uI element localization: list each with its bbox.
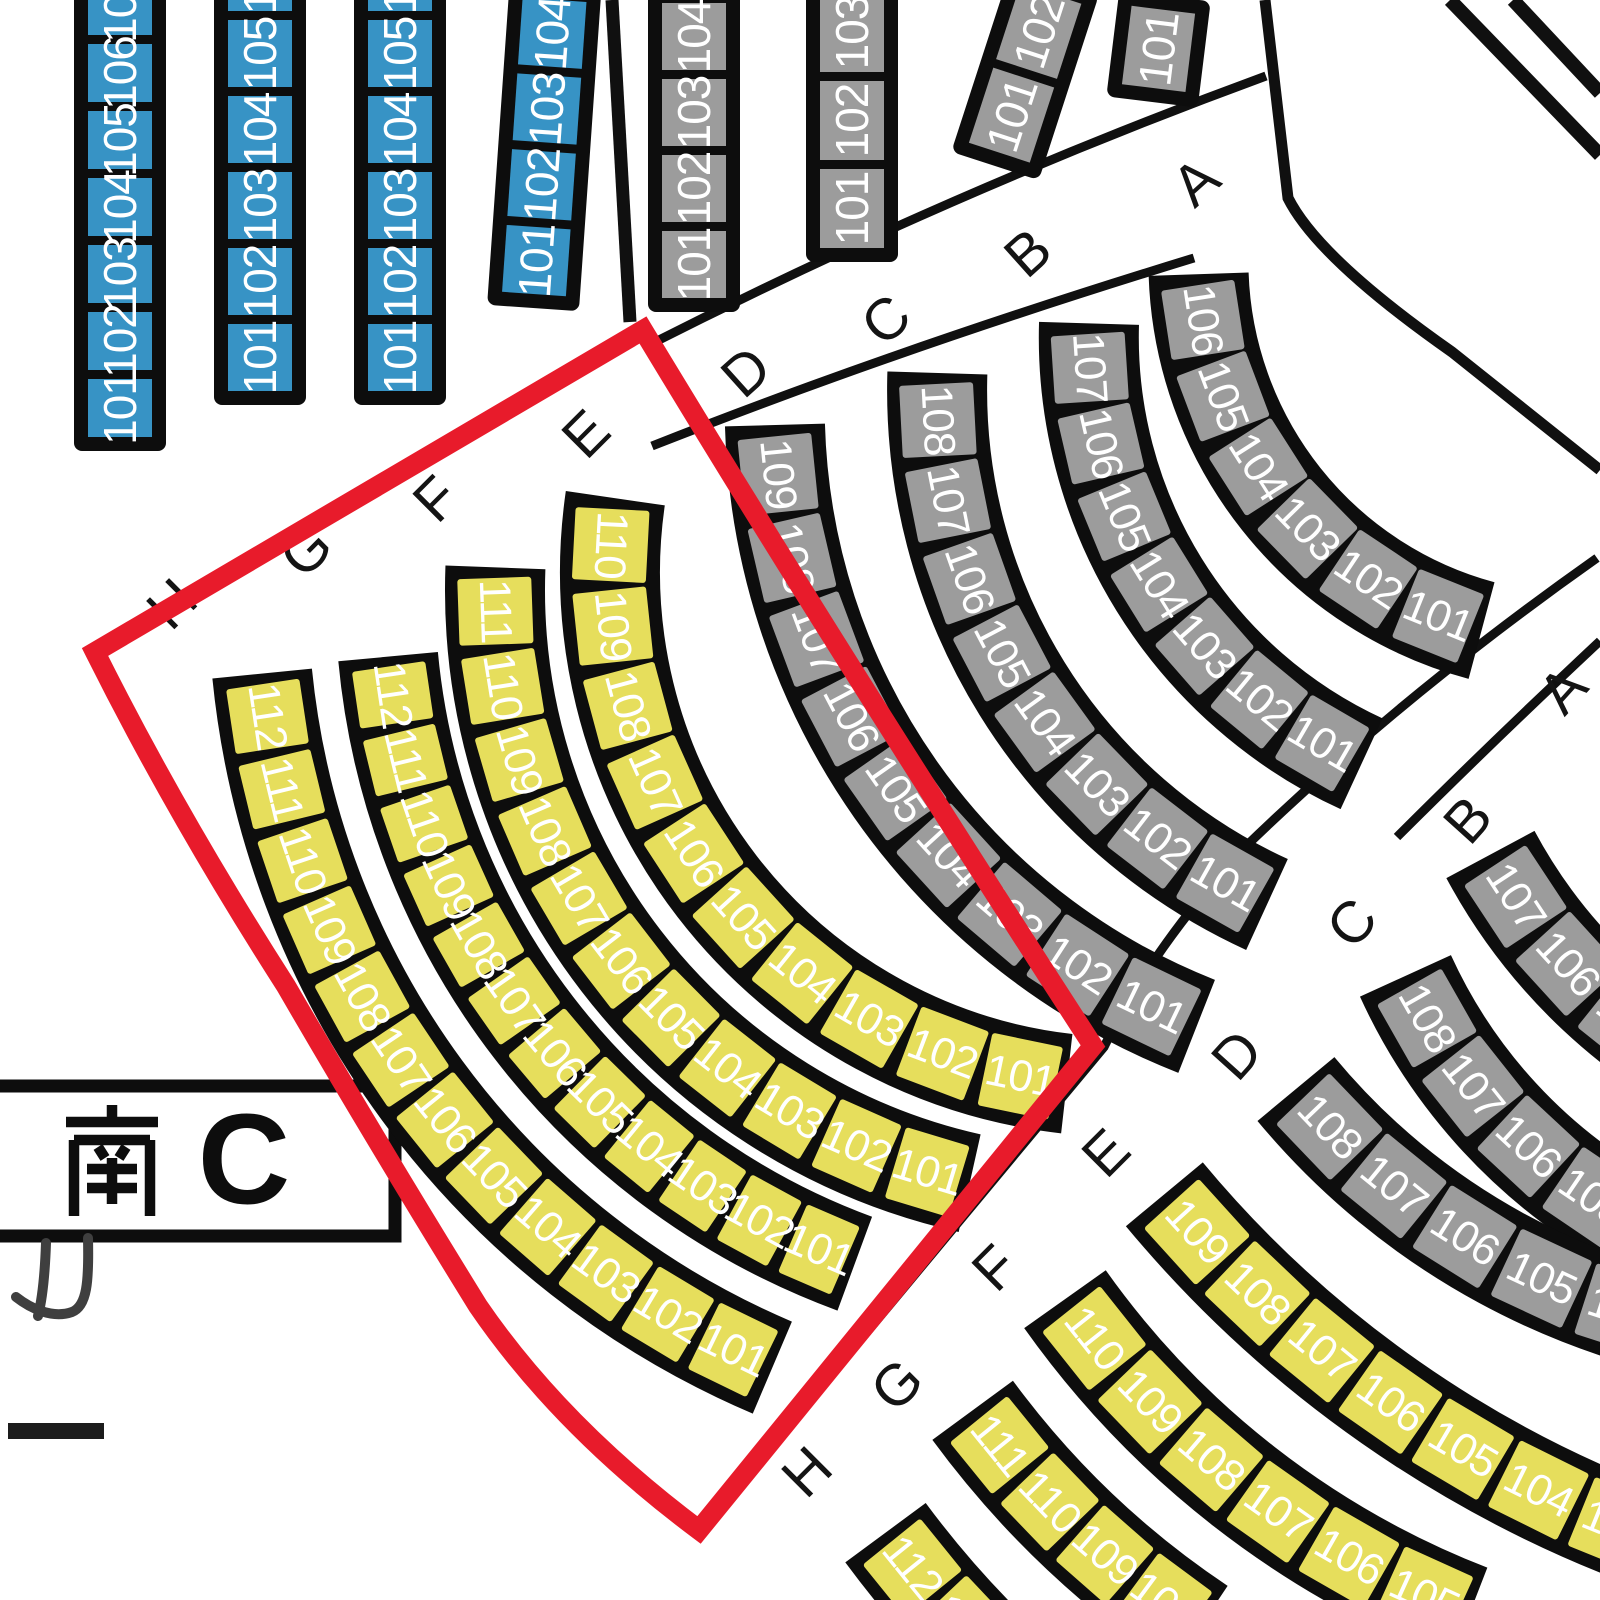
svg-text:106: 106 [94,36,146,110]
seat-column-upper-left-blue-B2: 101102103104105106 [214,0,306,405]
svg-text:104: 104 [94,170,146,244]
svg-text:107: 107 [94,0,146,43]
venue-seat-map: C HGFEDCBAABCDEFGH 101102103104105106107… [0,0,1600,1600]
svg-text:103: 103 [374,169,426,243]
seat-upper-left-blue-B1-103[interactable]: 103 [88,237,152,311]
svg-text:105: 105 [234,17,286,91]
svg-text:104: 104 [374,92,426,166]
seat-upper-left-blue-B1-101[interactable]: 101 [88,371,152,445]
seat-column-upper-left-blue-B1: 101102103104105106107 [74,0,166,451]
svg-text:105: 105 [94,103,146,177]
seat-minami-c-F-110[interactable]: 110 [461,647,545,725]
seat-minami-c-E-110[interactable]: 110 [572,507,650,583]
svg-text:107: 107 [1063,331,1116,404]
svg-text:102: 102 [374,245,426,319]
seat-upper-left-blue-B4-102[interactable]: 102 [507,146,576,224]
seat-upper-left-blue-B3-101[interactable]: 101 [368,321,432,395]
seat-upper-left-blue-B2-102[interactable]: 102 [228,245,292,319]
svg-text:112: 112 [364,658,422,732]
seat-upper-left-blue-B2-105[interactable]: 105 [228,17,292,91]
seat-column-upper-gray-G1: 101102103104 [648,0,740,312]
seat-upper-left-blue-B1-102[interactable]: 102 [88,304,152,378]
svg-text:102: 102 [668,152,720,226]
seat-gray-upper-right-B-107[interactable]: 107 [1051,330,1129,405]
svg-text:104: 104 [234,92,286,166]
svg-text:106: 106 [374,0,426,14]
seat-upper-left-blue-B1-107[interactable]: 107 [88,0,152,43]
svg-text:111: 111 [470,578,521,644]
svg-text:103: 103 [234,169,286,243]
svg-text:101: 101 [668,228,720,302]
seat-upper-left-blue-B1-105[interactable]: 105 [88,103,152,177]
seat-gray-upper-right-C-108[interactable]: 108 [899,382,977,458]
svg-text:104: 104 [668,0,720,73]
seat-upper-gray-G1-104[interactable]: 104 [662,0,726,73]
seat-upper-gray-G2-101[interactable]: 101 [820,169,884,248]
svg-text:112: 112 [238,679,296,753]
svg-text:104: 104 [524,0,581,72]
seat-column-upper-left-blue-B3: 101102103104105106 [354,0,446,405]
section-label-letter: C [198,1089,290,1232]
svg-text:105: 105 [374,17,426,91]
svg-text:110: 110 [584,510,636,580]
seat-column-upper-gray-G4: 101 [1106,0,1210,108]
seat-upper-gray-G1-101[interactable]: 101 [662,228,726,302]
seat-upper-left-blue-B3-102[interactable]: 102 [368,245,432,319]
seat-upper-left-blue-B3-105[interactable]: 105 [368,17,432,91]
svg-text:102: 102 [826,84,878,158]
svg-text:101: 101 [374,321,426,395]
svg-text:103: 103 [518,70,575,147]
seat-upper-left-blue-B1-106[interactable]: 106 [88,36,152,110]
seat-upper-left-blue-B4-104[interactable]: 104 [518,0,587,72]
seat-minami-c-H-112[interactable]: 112 [226,678,309,755]
seat-upper-left-blue-B2-106[interactable]: 106 [228,0,292,14]
svg-text:101: 101 [826,172,878,246]
svg-text:101: 101 [508,222,565,299]
svg-text:102: 102 [234,245,286,319]
seat-upper-gray-G2-103[interactable]: 103 [820,0,884,72]
seat-upper-left-blue-B1-104[interactable]: 104 [88,170,152,244]
seat-upper-left-blue-B3-106[interactable]: 106 [368,0,432,14]
seat-gray-upper-right-C-107[interactable]: 107 [905,458,992,543]
seat-upper-gray-G1-103[interactable]: 103 [662,76,726,150]
seat-upper-left-blue-B4-103[interactable]: 103 [512,70,581,148]
seat-upper-left-blue-B3-104[interactable]: 104 [368,92,432,166]
seat-upper-gray-G1-102[interactable]: 102 [662,152,726,226]
seat-upper-left-blue-B2-101[interactable]: 101 [228,321,292,395]
svg-text:106: 106 [234,0,286,14]
svg-text:102: 102 [94,304,146,378]
svg-text:101: 101 [94,371,146,445]
svg-text:101: 101 [1128,9,1189,89]
svg-text:101: 101 [234,321,286,395]
section-label-box: C [0,1086,395,1236]
svg-text:109: 109 [585,589,641,664]
svg-text:103: 103 [94,237,146,311]
seat-upper-left-blue-B3-103[interactable]: 103 [368,169,432,243]
seat-map-page: C HGFEDCBAABCDEFGH 101102103104105106107… [0,0,1600,1600]
svg-text:102: 102 [513,146,570,223]
seat-upper-left-blue-B2-103[interactable]: 103 [228,169,292,243]
svg-text:103: 103 [668,76,720,150]
svg-text:108: 108 [912,384,965,457]
seat-column-upper-gray-G2: 101102103 [806,0,898,262]
seat-upper-left-blue-B4-101[interactable]: 101 [502,222,571,300]
seat-gray-upper-right-A-106[interactable]: 106 [1161,279,1245,360]
seat-upper-gray-G2-102[interactable]: 102 [820,81,884,160]
seat-upper-gray-G4-101[interactable]: 101 [1122,6,1195,92]
seat-minami-c-E-109[interactable]: 109 [572,586,653,666]
seat-minami-c-F-111[interactable]: 111 [457,577,533,646]
svg-text:103: 103 [826,0,878,69]
seat-upper-left-blue-B2-104[interactable]: 104 [228,92,292,166]
